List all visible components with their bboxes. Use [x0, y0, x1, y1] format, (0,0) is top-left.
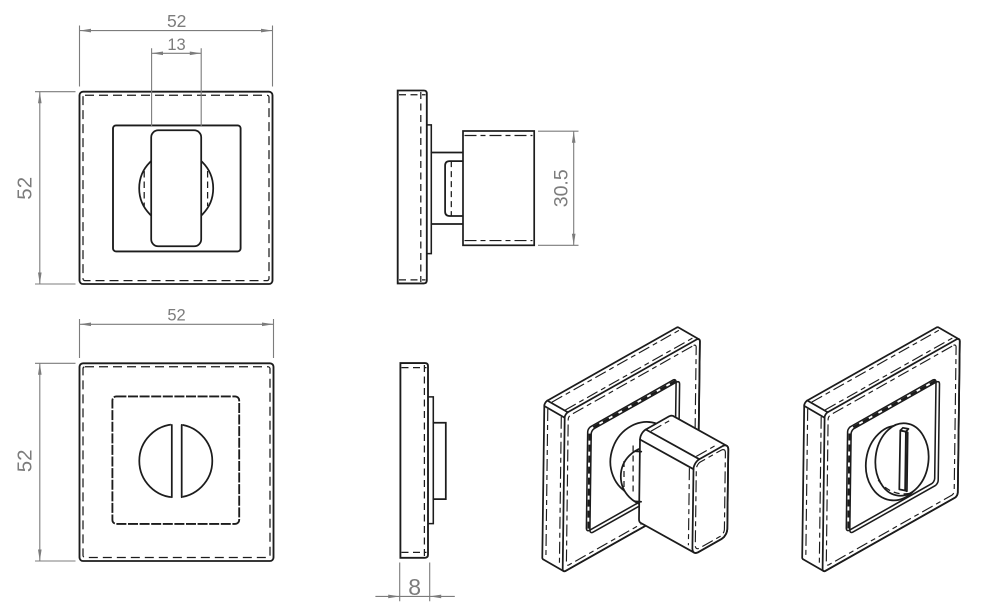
svg-text:13: 13	[167, 36, 185, 54]
svg-text:52: 52	[14, 177, 37, 200]
svg-text:52: 52	[167, 11, 186, 31]
svg-text:30.5: 30.5	[551, 169, 573, 207]
svg-text:8: 8	[408, 574, 421, 600]
svg-text:52: 52	[167, 307, 185, 325]
svg-text:52: 52	[14, 449, 37, 472]
